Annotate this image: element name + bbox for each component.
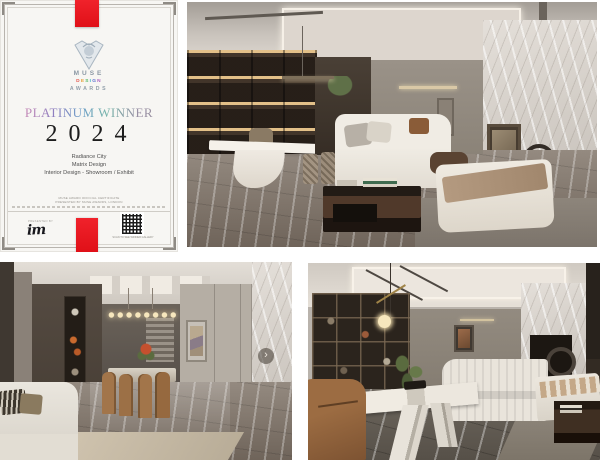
award-year: 2024 <box>0 121 178 148</box>
woven-stool <box>303 154 318 184</box>
designer-name: Matrix Design <box>0 161 178 169</box>
footnote-line: PRESENTED BY MUSE AWARDS, LONDON <box>0 200 178 204</box>
sofa-cushion-white <box>366 121 392 143</box>
dining-chair <box>119 374 133 416</box>
award-title: PLATINUM WINNER <box>0 105 178 121</box>
frame-corner-ornament <box>2 237 15 250</box>
artwork-figure <box>190 326 203 356</box>
collage-canvas: MUSE DESIGN AWARDS PLATINUM WINNER 2024 … <box>0 0 600 460</box>
table-open-shelf <box>333 204 377 222</box>
back-chandelier <box>399 86 457 89</box>
bonsai-plant <box>325 76 355 98</box>
red-ribbon-bottom <box>76 218 98 252</box>
books-stack <box>363 178 397 187</box>
frame-corner-ornament <box>163 237 176 250</box>
photo-top-right-showroom[interactable] <box>187 2 597 247</box>
presenter-im-logo: im <box>27 221 68 238</box>
chandelier-rod <box>128 288 129 310</box>
woven-stool <box>321 152 335 184</box>
logo-letter: N <box>97 79 102 84</box>
pendant-bar-light <box>282 76 334 79</box>
frame-corner-ornament <box>2 2 15 15</box>
logo-wordmark-design: DESIGN <box>0 79 178 84</box>
book-stack <box>560 405 582 413</box>
globe-pendant-light <box>378 315 391 328</box>
qr-code <box>122 214 142 234</box>
pendant-rod <box>302 26 303 76</box>
award-category: Interior Design - Showroom / Exhibit <box>0 169 178 177</box>
dining-chair <box>155 372 170 418</box>
ring-sculpture <box>546 347 576 377</box>
photo-bottom-right-living[interactable] <box>308 263 600 460</box>
project-name: Radiance City <box>0 153 178 161</box>
red-ribbon-top <box>75 0 99 27</box>
sofa-cushion-rust <box>409 118 429 134</box>
photo-bottom-left-dining[interactable]: › <box>0 262 292 460</box>
pendant-cord <box>390 263 391 319</box>
qr-caption: SCAN TO SEE WINNER GALLERY <box>108 236 158 239</box>
chandelier-rod <box>152 288 153 310</box>
carpet <box>58 432 244 460</box>
muse-goddess-logo-icon <box>66 38 112 72</box>
back-artwork-canvas <box>458 329 470 348</box>
flower-arrangement <box>136 340 156 366</box>
frame-corner-ornament <box>163 2 176 15</box>
logo-wordmark-muse: MUSE <box>0 70 178 77</box>
logo-wordmark-awards: AWARDS <box>0 86 178 92</box>
dining-chair <box>138 374 152 418</box>
certificate-divider-line <box>8 211 170 212</box>
award-certificate-image[interactable]: MUSE DESIGN AWARDS PLATINUM WINNER 2024 … <box>0 0 178 252</box>
tan-cushion <box>19 393 43 415</box>
micro-text-line <box>12 206 166 208</box>
niche-objects <box>67 304 83 384</box>
chandelier-bulbs <box>108 312 176 318</box>
dining-chair <box>102 372 116 414</box>
back-pendant-bar <box>460 319 494 321</box>
decor-tray <box>337 180 357 186</box>
recipient-block: Radiance City Matrix Design Interior Des… <box>0 153 178 177</box>
carousel-next-button[interactable]: › <box>258 348 274 364</box>
leather-armchair <box>308 379 366 460</box>
certificate-footnote: MUSE AWARD OFFICIAL CERTIFICATE PRESENTE… <box>0 196 178 204</box>
